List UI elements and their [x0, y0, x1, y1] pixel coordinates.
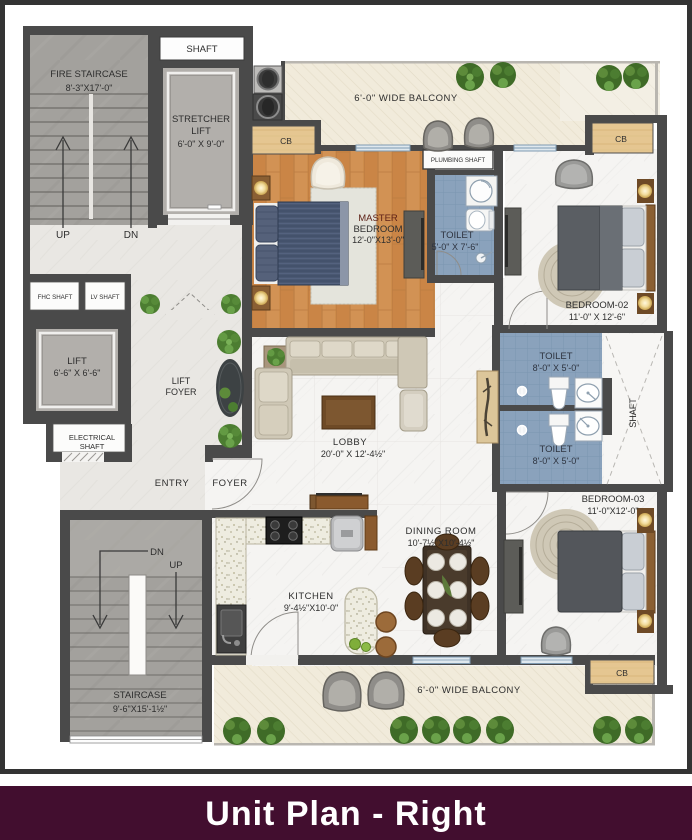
svg-text:6'-0" X 9'-0": 6'-0" X 9'-0" — [178, 139, 225, 149]
svg-text:9'-4½"X10'-0": 9'-4½"X10'-0" — [284, 603, 338, 613]
svg-text:6'-0" WIDE BALCONY: 6'-0" WIDE BALCONY — [354, 93, 458, 104]
svg-text:ELECTRICAL: ELECTRICAL — [69, 433, 115, 442]
svg-text:PLUMBING SHAFT: PLUMBING SHAFT — [431, 157, 486, 164]
svg-text:DINING ROOM: DINING ROOM — [406, 526, 477, 537]
svg-text:ENTRY: ENTRY — [155, 478, 190, 489]
svg-text:11'-0" X 12'-6": 11'-0" X 12'-6" — [569, 312, 625, 322]
svg-text:DN: DN — [150, 547, 164, 558]
svg-text:CB: CB — [615, 134, 627, 144]
svg-text:FOYER: FOYER — [212, 478, 247, 489]
svg-text:Unit Plan - Right: Unit Plan - Right — [205, 795, 486, 833]
svg-text:BEDROOM-03: BEDROOM-03 — [582, 494, 645, 505]
svg-text:SHAFT: SHAFT — [186, 44, 217, 55]
svg-text:TOILET: TOILET — [440, 230, 473, 241]
svg-text:SHAFT: SHAFT — [80, 442, 105, 451]
svg-text:8'-0" X 5'-0": 8'-0" X 5'-0" — [533, 363, 580, 373]
svg-text:LIFT: LIFT — [191, 126, 211, 137]
svg-text:KITCHEN: KITCHEN — [288, 591, 333, 602]
svg-text:MASTER: MASTER — [358, 213, 398, 224]
svg-text:12'-0"X13'-0": 12'-0"X13'-0" — [352, 235, 404, 245]
svg-text:TOILET: TOILET — [539, 444, 572, 455]
svg-text:FHC SHAFT: FHC SHAFT — [38, 294, 73, 301]
svg-text:LIFT: LIFT — [172, 376, 191, 386]
svg-text:TOILET: TOILET — [539, 351, 572, 362]
svg-text:5'-0" X 7'-6": 5'-0" X 7'-6" — [432, 242, 479, 252]
svg-text:6'-0" WIDE BALCONY: 6'-0" WIDE BALCONY — [417, 685, 521, 696]
svg-text:20'-0" X 12'-4½": 20'-0" X 12'-4½" — [321, 449, 385, 459]
svg-text:10'-7½"X10'-4½": 10'-7½"X10'-4½" — [408, 538, 475, 548]
svg-text:BEDROOM: BEDROOM — [353, 224, 402, 235]
svg-text:LIFT: LIFT — [67, 356, 87, 367]
svg-text:STAIRCASE: STAIRCASE — [113, 690, 166, 701]
svg-text:9'-6"X15'-1½": 9'-6"X15'-1½" — [113, 704, 167, 714]
svg-text:LOBBY: LOBBY — [333, 437, 367, 448]
svg-text:8'-0" X 5'-0": 8'-0" X 5'-0" — [533, 456, 580, 466]
svg-text:SHAFT: SHAFT — [628, 398, 638, 428]
svg-text:CB: CB — [280, 136, 292, 146]
svg-text:UP: UP — [56, 230, 70, 241]
svg-text:UP: UP — [169, 560, 182, 571]
svg-text:DN: DN — [124, 230, 138, 241]
svg-text:6'-6" X 6'-6": 6'-6" X 6'-6" — [54, 368, 101, 378]
svg-text:CB: CB — [616, 668, 628, 678]
svg-text:BEDROOM-02: BEDROOM-02 — [566, 300, 629, 311]
svg-text:8'-3"X17'-0": 8'-3"X17'-0" — [66, 83, 113, 93]
svg-text:FIRE STAIRCASE: FIRE STAIRCASE — [50, 69, 127, 80]
svg-text:11'-0"X12'-0": 11'-0"X12'-0" — [587, 506, 638, 516]
svg-text:FOYER: FOYER — [165, 387, 197, 397]
svg-text:LV SHAFT: LV SHAFT — [90, 294, 119, 301]
svg-text:STRETCHER: STRETCHER — [172, 114, 230, 125]
